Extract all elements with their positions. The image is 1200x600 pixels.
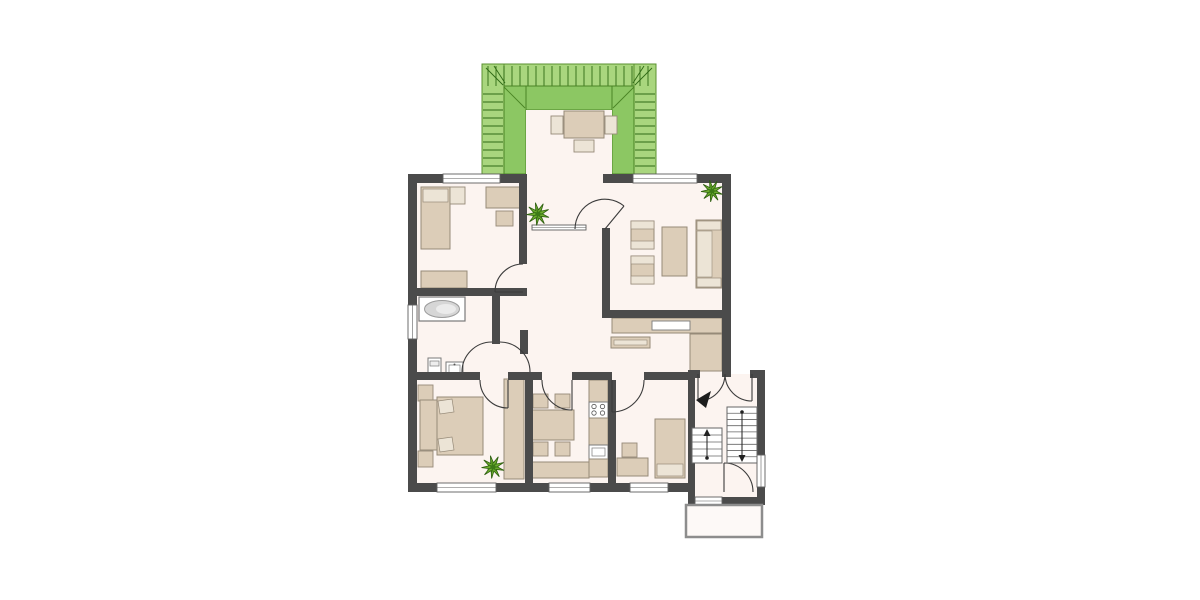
wall-divider bbox=[644, 372, 695, 380]
bathtub-basin-highlight bbox=[436, 304, 456, 314]
floor-plan-page bbox=[0, 0, 1200, 600]
bed-pillow bbox=[438, 437, 454, 452]
bed-3-pillow bbox=[657, 464, 683, 476]
terrace-chair bbox=[551, 116, 563, 134]
toilet-tank bbox=[430, 361, 439, 366]
entry-porch bbox=[686, 505, 762, 537]
wall-bath-right bbox=[492, 296, 500, 344]
hall-wardrobe bbox=[690, 334, 722, 371]
desk-chair bbox=[496, 211, 513, 226]
bath-sink-basin bbox=[449, 365, 460, 373]
armchair-cushion bbox=[631, 276, 654, 284]
hedge-outer-top bbox=[482, 64, 656, 88]
bed-pillow bbox=[438, 399, 454, 414]
stove bbox=[589, 402, 608, 418]
nightstand bbox=[418, 451, 433, 467]
floor-plan-svg bbox=[0, 0, 1200, 600]
wall-living-bottom bbox=[602, 310, 731, 318]
stove-burner bbox=[592, 404, 596, 408]
stove-burner bbox=[592, 411, 596, 415]
kitchen-chair bbox=[555, 442, 570, 456]
dresser bbox=[421, 271, 467, 288]
stove-burner bbox=[600, 404, 604, 408]
floor-plan-canvas bbox=[0, 0, 1200, 600]
sofa-seat bbox=[697, 231, 712, 277]
armchair-cushion bbox=[631, 241, 654, 249]
stove-burner bbox=[600, 411, 604, 415]
wall-living-left bbox=[602, 228, 610, 318]
armchair-cushion bbox=[631, 256, 654, 264]
nightstand bbox=[450, 187, 465, 204]
stairs-flight-left bbox=[705, 456, 709, 460]
wall-stairwell-right bbox=[757, 370, 765, 455]
bath-sink-tap bbox=[454, 364, 456, 366]
hedge-outer-left bbox=[482, 64, 504, 174]
nightstand bbox=[418, 385, 433, 401]
hall-shelf-inner bbox=[614, 340, 647, 345]
kitchen-counter bbox=[589, 380, 608, 402]
kitchen-counter bbox=[589, 418, 608, 445]
kitchen-counter bbox=[589, 459, 608, 477]
kitchen-chair bbox=[533, 394, 548, 408]
wall-divider bbox=[572, 372, 612, 380]
wall-divider bbox=[408, 372, 480, 380]
sofa-armrest bbox=[697, 278, 721, 287]
terrace-table bbox=[564, 111, 604, 138]
hedge-outer-right bbox=[634, 64, 656, 174]
wall-bedroom1-right bbox=[519, 174, 527, 264]
wall-bedroom2-kitchen bbox=[525, 380, 533, 483]
kitchen-sink-basin bbox=[592, 448, 605, 456]
hall-sideboard-handle bbox=[652, 321, 690, 330]
stairs-flight-right bbox=[740, 410, 744, 414]
desk bbox=[617, 458, 648, 476]
wardrobe bbox=[504, 379, 524, 479]
kitchen-counter bbox=[532, 462, 589, 478]
terrace-chair bbox=[574, 140, 594, 152]
sofa-armrest bbox=[697, 221, 721, 230]
terrace-chair bbox=[605, 116, 617, 134]
desk-chair bbox=[622, 443, 637, 457]
wall-divider bbox=[508, 372, 542, 380]
hedge-inner-left bbox=[504, 86, 526, 174]
bed-double-headboard bbox=[420, 400, 437, 450]
bed-1-pillow bbox=[423, 189, 448, 202]
kitchen-chair bbox=[533, 442, 548, 456]
kitchen-table bbox=[529, 410, 574, 440]
coffee-table bbox=[662, 227, 687, 276]
armchair-cushion bbox=[631, 221, 654, 229]
wall-right bbox=[722, 174, 731, 377]
